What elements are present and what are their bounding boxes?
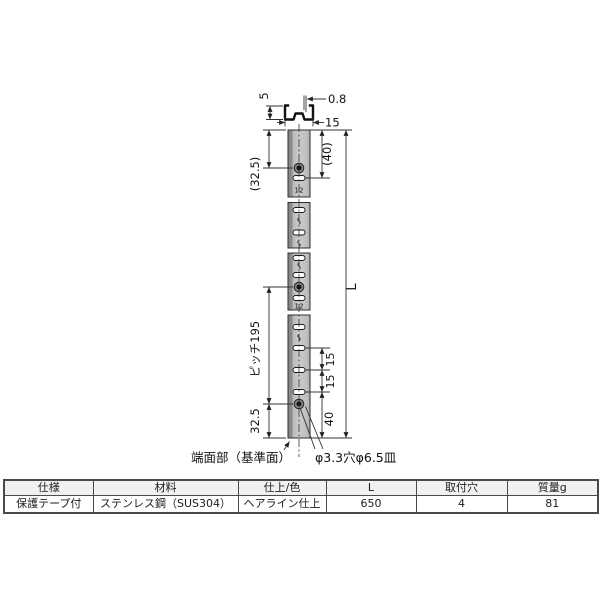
col-header-mass: 質量g (507, 480, 598, 496)
dim-hole-pitch: ピッチ195 (248, 321, 262, 377)
spec-table: 仕様 材料 仕上/色 L 取付穴 質量g 保護テープ付 ステンレス鋼（SUS30… (3, 479, 599, 514)
col-header-spec: 仕様 (4, 480, 93, 496)
dim-bottom-hole-to-end: 32.5 (248, 408, 262, 434)
cell-length: 650 (326, 496, 416, 514)
pilaster-technical-drawing: 5 0.8 15 (0, 0, 600, 478)
spec-table-header-row: 仕様 材料 仕上/色 L 取付穴 質量g (4, 480, 598, 496)
cell-spec: 保護テープ付 (4, 496, 93, 514)
cell-material: ステンレス鋼（SUS304） (93, 496, 238, 514)
col-header-material: 材料 (93, 480, 238, 496)
dim-top-end-to-slot: (40) (320, 142, 334, 166)
col-header-finish: 仕上/色 (238, 480, 326, 496)
technical-drawing-page: 5 0.8 15 (0, 0, 600, 600)
cell-finish: ヘアライン仕上 (238, 496, 326, 514)
right-dimensions: (40) 15 15 40 L (305, 130, 360, 438)
cross-section-view: 5 0.8 15 (257, 92, 346, 130)
dim-section-width: 15 (325, 116, 340, 130)
dim-slot-pitch-a: 15 (324, 353, 337, 367)
left-dimensions: (32.5) ピッチ195 32.5 (248, 130, 293, 438)
dim-slot-pitch-b: 15 (324, 375, 337, 389)
dim-overall-length: L (345, 283, 360, 291)
col-header-length: L (326, 480, 416, 496)
dim-bottom-slot-to-end: 40 (322, 412, 336, 427)
front-view-rail: 12 12 (288, 124, 310, 457)
dim-top-end-to-hole: (32.5) (248, 157, 262, 192)
callout-end-face: 端面部（基準面） (191, 450, 291, 465)
cell-mass: 81 (507, 496, 598, 514)
dim-section-height: 5 (257, 92, 271, 99)
section-profile (285, 106, 313, 120)
col-header-mount-holes: 取付穴 (416, 480, 507, 496)
cell-mount-holes: 4 (416, 496, 507, 514)
spec-table-data-row: 保護テープ付 ステンレス鋼（SUS304） ヘアライン仕上 650 4 81 (4, 496, 598, 514)
dim-section-thickness: 0.8 (328, 92, 346, 106)
callout-hole-spec: φ3.3穴φ6.5皿 (315, 450, 397, 465)
